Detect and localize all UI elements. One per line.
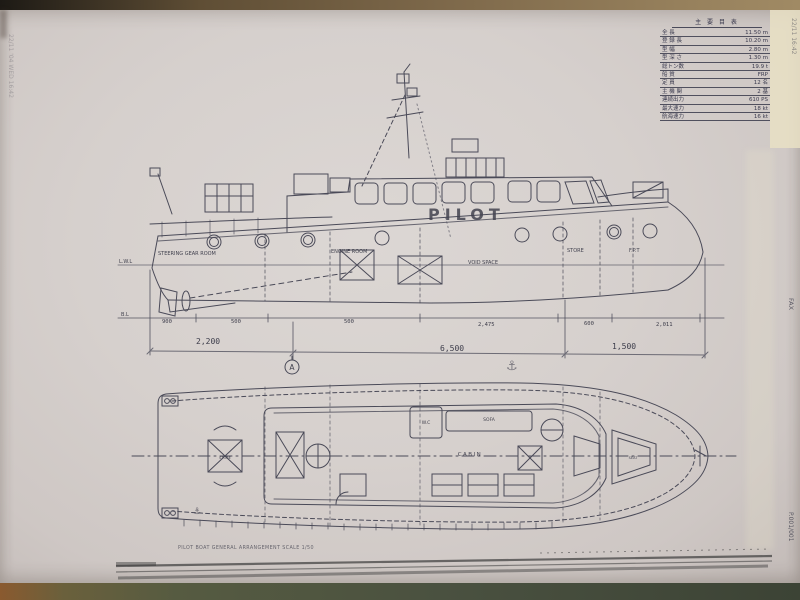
compartment-label-engine: ENGINE ROOM [331,249,367,255]
hull-outline [150,189,703,303]
plan-view: STORE W.C SOFA CABIN SEAT ⚓ PILOT BOAT G… [132,383,736,551]
plan-label-sofa: SOFA [483,417,496,423]
sub-dim-5: 2,011 [656,322,673,328]
spec-row: 主 機 関2 基 [660,88,770,96]
spec-row: 定 員12 名 [660,79,770,87]
main-dim-fwd: 1,500 [612,342,636,351]
waterline-label: L.W.L [119,259,132,265]
engine-hatch-profile [340,250,442,284]
photo-of-fax-drawing: PILOT STEERING GEAR ROOM ENGINE ROOM VOI… [0,0,800,600]
shaft-line [190,272,352,298]
spec-table: 主 要 目 表 全 長11.50 m 登 録 長10.20 m 型 幅2.80 … [660,17,770,121]
portholes [207,224,657,249]
compartment-label-store: STORE [567,248,584,254]
radar-unit [452,139,478,152]
sub-dim-1: 500 [231,319,241,325]
propeller [182,291,190,311]
spec-row: 航海速力16 kt [660,113,770,121]
plan-anchor-icon: ⚓ [193,507,201,517]
plan-label-store: STORE [219,456,231,460]
anchor-icon: ⚓ [506,359,518,374]
fax-page-number: P.001/001 [787,512,794,542]
spec-row: 船 質FRP [660,71,770,79]
sub-dim-4: 600 [584,321,594,327]
section-marker-letter: A [289,363,295,372]
spec-row: 連続出力610 PS [660,96,770,104]
spec-table-title: 主 要 目 表 [672,17,762,28]
sub-dim-2: 500 [344,319,354,325]
sub-dim-3: 2,475 [478,322,495,328]
bow-fittings [612,430,706,484]
spec-row: 登 録 長10.20 m [660,37,770,45]
main-dim-mid: 6,500 [440,344,464,353]
spec-row: 型 幅2.80 m [660,46,770,54]
plan-label-wc: W.C [422,420,431,426]
baseline-label: B.L [121,312,129,318]
fax-left-edge-text: 22/11 '04 WED 16:42 [7,34,14,98]
fax-top-right-edge-text: 22/11 16:42 [790,18,797,55]
drawing-note: PILOT BOAT GENERAL ARRANGEMENT SCALE 1/5… [178,545,314,551]
stern-gear [150,168,352,316]
spec-row: 総トン数19.9 t [660,63,770,71]
roof-box [446,158,504,177]
plan-label-seat: SEAT [629,456,639,460]
main-dim-aft: 2,200 [196,337,220,346]
mast-stay [362,95,405,186]
spec-row: 最大速力18 kt [660,105,770,113]
compartment-label-void: VOID SPACE [468,260,498,266]
spec-row: 全 長11.50 m [660,29,770,37]
boat-name-label: PILOT [428,205,505,224]
compartment-label-steering: STEERING GEAR ROOM [158,251,216,257]
compartment-label-fpt: F.P.T [629,248,640,254]
sub-dim-0: 900 [162,319,172,325]
profile-view: PILOT STEERING GEAR ROOM ENGINE ROOM VOI… [118,64,724,374]
scan-smudge-lines [116,549,772,578]
spec-row: 型 深 さ1.30 m [660,54,770,62]
frame-ticks [184,520,552,530]
fax-right-edge-text: FAX [787,298,795,311]
plan-label-cabin: CABIN [458,452,483,458]
